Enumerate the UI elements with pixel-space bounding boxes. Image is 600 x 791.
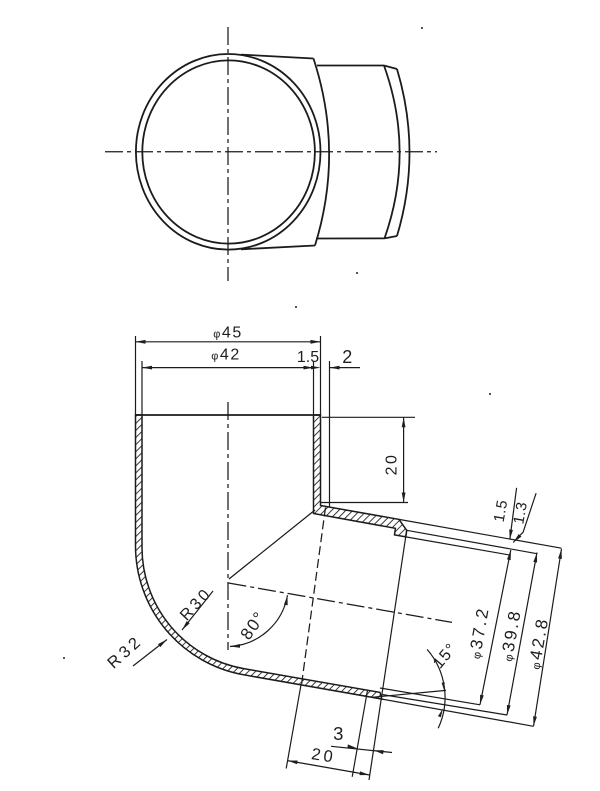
svg-text:1.5: 1.5 (491, 498, 512, 523)
svg-text:R30: R30 (177, 585, 216, 625)
svg-text:1.5: 1.5 (297, 349, 319, 366)
svg-text:80°: 80° (237, 608, 270, 644)
svg-text:φ42.8: φ42.8 (525, 615, 553, 670)
svg-text:φ42: φ42 (211, 347, 240, 364)
svg-text:20: 20 (310, 745, 337, 767)
svg-text:R32: R32 (104, 632, 146, 673)
svg-text:φ37.2: φ37.2 (465, 605, 493, 660)
svg-text:20: 20 (384, 453, 401, 476)
svg-text:φ39.8: φ39.8 (497, 607, 525, 662)
svg-text:15°: 15° (430, 640, 461, 672)
svg-text:φ45: φ45 (213, 325, 242, 342)
svg-text:1.3: 1.3 (510, 500, 531, 525)
svg-text:2: 2 (342, 347, 354, 367)
svg-text:3: 3 (333, 723, 345, 744)
